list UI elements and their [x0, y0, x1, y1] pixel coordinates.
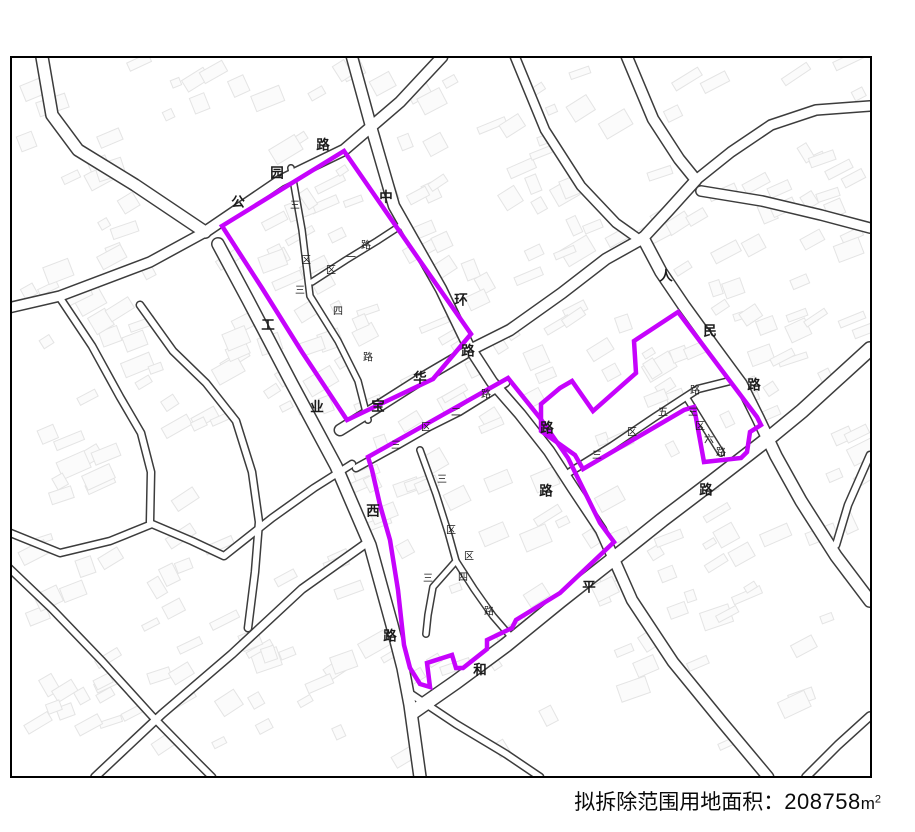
road-label: 路 — [747, 377, 761, 393]
road-label: 路 — [699, 482, 713, 498]
area-unit: m2 — [861, 794, 881, 813]
road-label: 路 — [690, 384, 700, 397]
road-label: 西 — [366, 504, 380, 519]
road-label: 公 — [231, 195, 245, 210]
road-label: 三 — [437, 475, 447, 486]
road-label: 路 — [716, 446, 726, 459]
area-label: 拟拆除范围用地面积： — [574, 791, 784, 814]
road-label: 区 — [695, 421, 705, 433]
road-label: 环 — [454, 293, 468, 308]
road-label: 路 — [361, 239, 371, 252]
map-container: 公园路中环路工业西路宝华人民路和平路路路三区三四路区一路三区二路三区区三四路三区… — [0, 0, 915, 832]
page: { "title": "龙华区龙华街道龙华第三工业区城市更新单元（计划调整） 拟… — [0, 0, 915, 832]
road-label: 园 — [270, 166, 284, 181]
road-label: 三 — [295, 286, 305, 297]
road-label: 三 — [423, 574, 433, 585]
road-label: 路 — [540, 420, 554, 436]
road-label: 宝 — [371, 398, 385, 414]
road-label: 一 — [346, 253, 356, 264]
road-label: 华 — [413, 370, 427, 386]
area-value: 208758 — [784, 789, 860, 814]
road-label: 三 — [391, 441, 401, 452]
road-label: 业 — [310, 400, 324, 415]
road-label: 区 — [421, 422, 431, 434]
map-canvas: 公园路中环路工业西路宝华人民路和平路路路三区三四路区一路三区二路三区区三四路三区… — [0, 0, 915, 832]
road-label: 六 — [704, 434, 714, 446]
road-label: 区 — [627, 427, 637, 439]
road-label: 三 — [290, 201, 300, 212]
road-label: 四 — [458, 573, 468, 584]
road-label: 三 — [592, 451, 602, 462]
road-label: 工 — [261, 318, 275, 333]
road-label: 四 — [333, 307, 343, 318]
road-label: 和 — [473, 663, 487, 678]
road-label: 路 — [363, 351, 373, 364]
road-label: 二 — [451, 408, 461, 419]
road-label: 人 — [659, 269, 673, 284]
road-label: 区 — [446, 525, 456, 537]
road-label: 路 — [484, 605, 494, 618]
road-label: 路 — [481, 388, 491, 401]
road-label: 三 — [688, 408, 698, 419]
road-label: 中 — [379, 189, 393, 205]
road-label: 区 — [326, 265, 336, 277]
area-summary: 拟拆除范围用地面积：208758m2 — [574, 786, 881, 816]
road-label: 民 — [703, 324, 717, 339]
road-label: 区 — [464, 551, 474, 563]
road-label: 平 — [582, 580, 596, 595]
road-label: 五 — [658, 408, 668, 419]
road-label: 路 — [461, 343, 475, 359]
road-label: 路 — [383, 628, 397, 644]
road-label: 区 — [301, 255, 311, 267]
road-label: 路 — [539, 483, 553, 499]
road-label: 路 — [316, 137, 330, 153]
